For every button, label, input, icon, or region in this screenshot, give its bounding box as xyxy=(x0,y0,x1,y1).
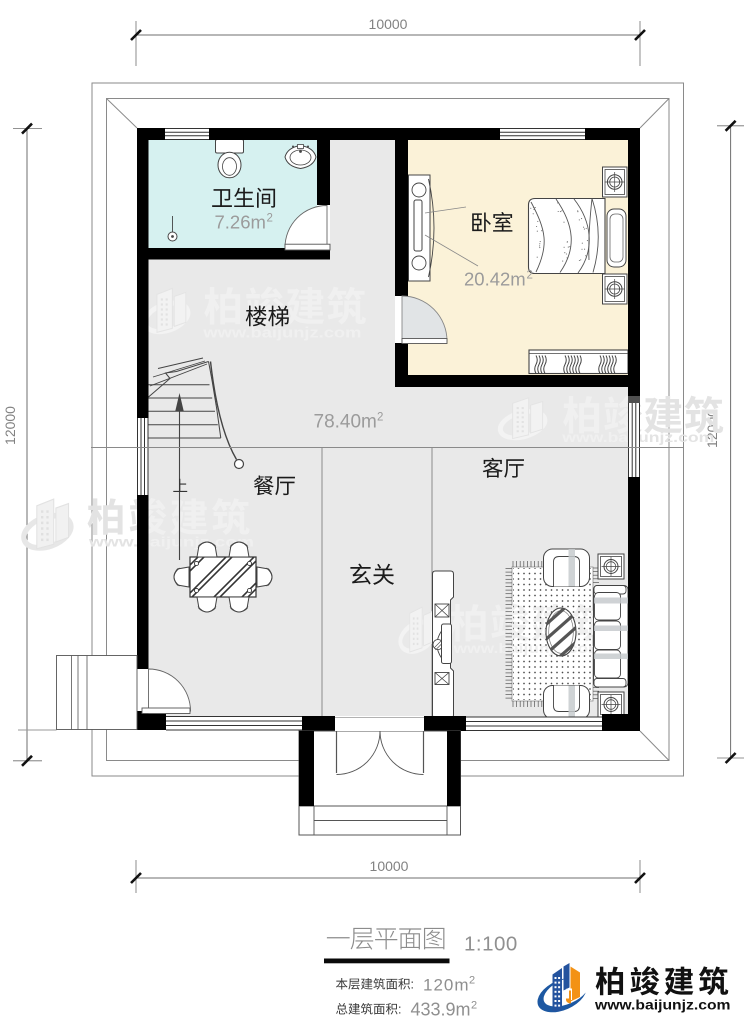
svg-text:7.26m: 7.26m xyxy=(215,212,266,233)
svg-text:2: 2 xyxy=(377,412,383,424)
svg-text::: : xyxy=(398,1003,401,1017)
svg-text:120m: 120m xyxy=(423,976,470,995)
svg-text:78.40m: 78.40m xyxy=(314,412,377,433)
svg-text:1:100: 1:100 xyxy=(464,933,518,956)
svg-text:10000: 10000 xyxy=(369,16,408,32)
svg-text:2: 2 xyxy=(469,975,475,987)
svg-text:www.baijunjz.com: www.baijunjz.com xyxy=(594,998,731,1013)
svg-text:2: 2 xyxy=(471,1000,477,1012)
svg-text:2: 2 xyxy=(527,270,533,282)
svg-text:12000: 12000 xyxy=(2,406,18,445)
svg-text:20.42m: 20.42m xyxy=(464,269,526,290)
svg-text:433.9m: 433.9m xyxy=(411,1000,471,1020)
svg-text:www.baijunjz.com: www.baijunjz.com xyxy=(202,326,361,342)
svg-text:10000: 10000 xyxy=(370,858,409,874)
svg-text:2: 2 xyxy=(267,213,273,225)
svg-text::: : xyxy=(411,978,414,992)
